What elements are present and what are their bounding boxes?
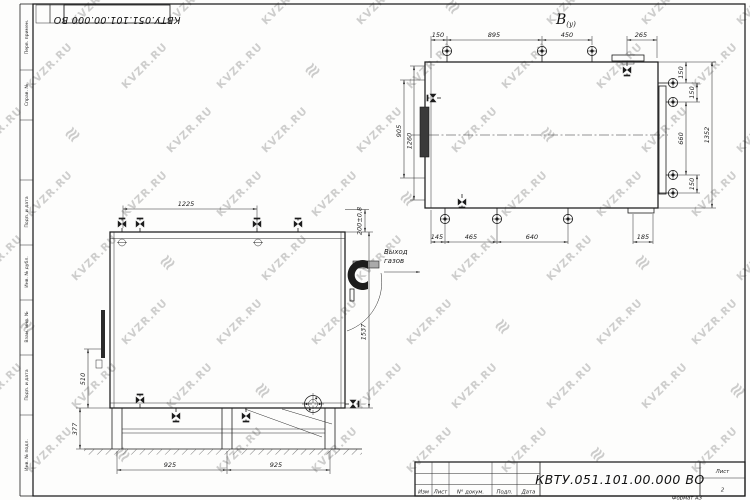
dim-925-right: 925 <box>270 461 282 469</box>
plan-top-fittings <box>442 46 644 64</box>
dim-150-r3: 150 <box>688 178 696 190</box>
wall-pad <box>420 107 429 157</box>
outlet-label: Выход газов <box>384 248 420 272</box>
bottom-flange <box>628 208 654 213</box>
dim-150-top: 150 <box>432 31 444 39</box>
level-gauge <box>101 310 105 358</box>
margin-label: Взам. инв. № <box>24 311 30 342</box>
drawing-linework: Перв. примен. Справ. № Подп. и дата Инв.… <box>0 0 750 500</box>
dim-1260: 1260 <box>406 133 414 150</box>
stamp-col-list: Лист <box>433 490 448 496</box>
sheet-label: Лист <box>715 469 730 475</box>
sheet-frame <box>20 4 745 496</box>
margin-label: Инв. № подл. <box>24 439 30 471</box>
stamp-col-podp: Подп. <box>496 490 512 496</box>
flue-outlet <box>347 260 382 331</box>
drawing-sheet: ≋KVZR.RUKVZR.RUKVZR.RUKVZR.RU≋KVZR.RUKVZ… <box>0 0 750 500</box>
dim-905: 905 <box>395 125 403 137</box>
dim-185: 185 <box>637 233 649 241</box>
doc-number-text: КВТУ.051.101.00.000 ВО <box>535 472 704 487</box>
support-frame <box>112 408 335 449</box>
top-flange <box>612 55 644 61</box>
margin-label: Подп. и дата <box>24 369 30 400</box>
dim-510: 510 <box>79 373 87 385</box>
margin-label: Инв. № дубл. <box>24 256 30 287</box>
dim-660: 660 <box>677 132 685 144</box>
plan-view: В(у) <box>395 12 716 244</box>
outlet-label-line1: Выход <box>384 248 408 256</box>
dim-265: 265 <box>635 31 647 39</box>
dim-150-r1: 150 <box>677 66 685 78</box>
dim-outlet-offset: 200±0,8 <box>356 207 364 235</box>
dim-1225: 1225 <box>178 200 195 208</box>
title-block: Изм Лист N° докум. Подп. Дата КВТУ.051.1… <box>415 462 745 500</box>
dim-height-1537: 1537 <box>360 323 368 340</box>
dim-895: 895 <box>488 31 500 39</box>
front-view: 1225 200±0,8 1537 510 377 <box>71 200 420 474</box>
plan-view-dimensions: 150 895 450 265 145 465 640 185 <box>395 31 716 244</box>
ground-line <box>84 449 362 455</box>
doc-number-flipped-text: КВТУ.051.101.00.000 ВО <box>53 14 180 25</box>
margin-label: Перв. примен. <box>24 20 30 55</box>
stamp-col-data: Дата <box>521 490 536 496</box>
dim-377: 377 <box>71 422 79 435</box>
dim-145: 145 <box>431 233 443 241</box>
format-note: Формат А3 <box>672 496 703 500</box>
dim-overall-right: 1352 <box>703 127 711 144</box>
dim-925-left: 925 <box>164 461 176 469</box>
outlet-label-line2: газов <box>384 257 404 265</box>
plan-right-manifold <box>658 78 678 197</box>
view-label: В(у) <box>555 12 576 29</box>
dim-150-r2: 150 <box>688 86 696 98</box>
stamp-col-docnum: N° докум. <box>457 490 484 496</box>
dim-640: 640 <box>526 233 538 241</box>
flipped-doc-number: КВТУ.051.101.00.000 ВО <box>36 5 181 25</box>
left-margin-column: Перв. примен. Справ. № Подп. и дата Инв.… <box>20 20 33 471</box>
sheet-number: 2 <box>721 488 725 494</box>
plan-bottom-fittings <box>440 208 654 224</box>
margin-label: Подп. и дата <box>24 196 30 227</box>
dim-465: 465 <box>465 233 477 241</box>
dim-450: 450 <box>561 31 573 39</box>
margin-label: Справ. № <box>24 84 30 107</box>
flanged-port <box>302 393 324 415</box>
stamp-col-izm: Изм <box>418 490 429 496</box>
